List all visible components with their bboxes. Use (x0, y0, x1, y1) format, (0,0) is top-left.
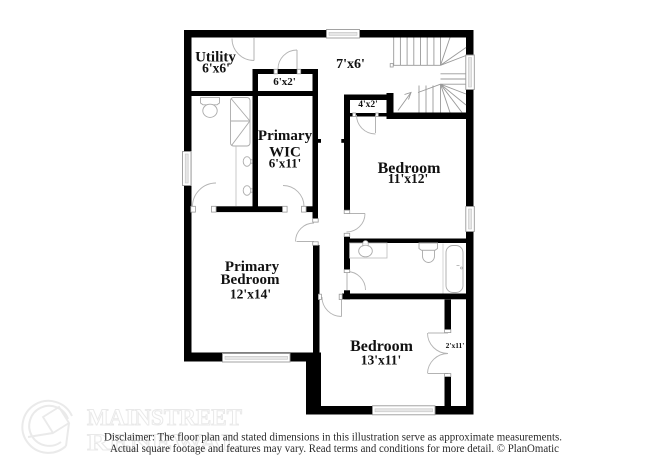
svg-text:12'x14': 12'x14' (230, 287, 271, 302)
svg-text:13'x11': 13'x11' (361, 352, 402, 367)
svg-text:7'x6': 7'x6' (336, 57, 365, 72)
svg-text:6'x11': 6'x11' (269, 156, 302, 171)
svg-text:6'x6': 6'x6' (202, 61, 230, 76)
svg-text:Actual square footage and feat: Actual square footage and features may v… (110, 443, 559, 455)
svg-text:Bedroom: Bedroom (221, 272, 280, 288)
svg-text:MAINSTREET: MAINSTREET (87, 405, 242, 431)
svg-text:4'x2': 4'x2' (358, 100, 378, 110)
svg-text:Disclaimer: The floor plan and: Disclaimer: The floor plan and stated di… (104, 431, 562, 443)
svg-text:Primary: Primary (258, 128, 313, 144)
svg-text:6'x2': 6'x2' (273, 76, 296, 88)
svg-text:2'x11': 2'x11' (446, 341, 465, 350)
svg-text:11'x12': 11'x12' (388, 171, 429, 186)
